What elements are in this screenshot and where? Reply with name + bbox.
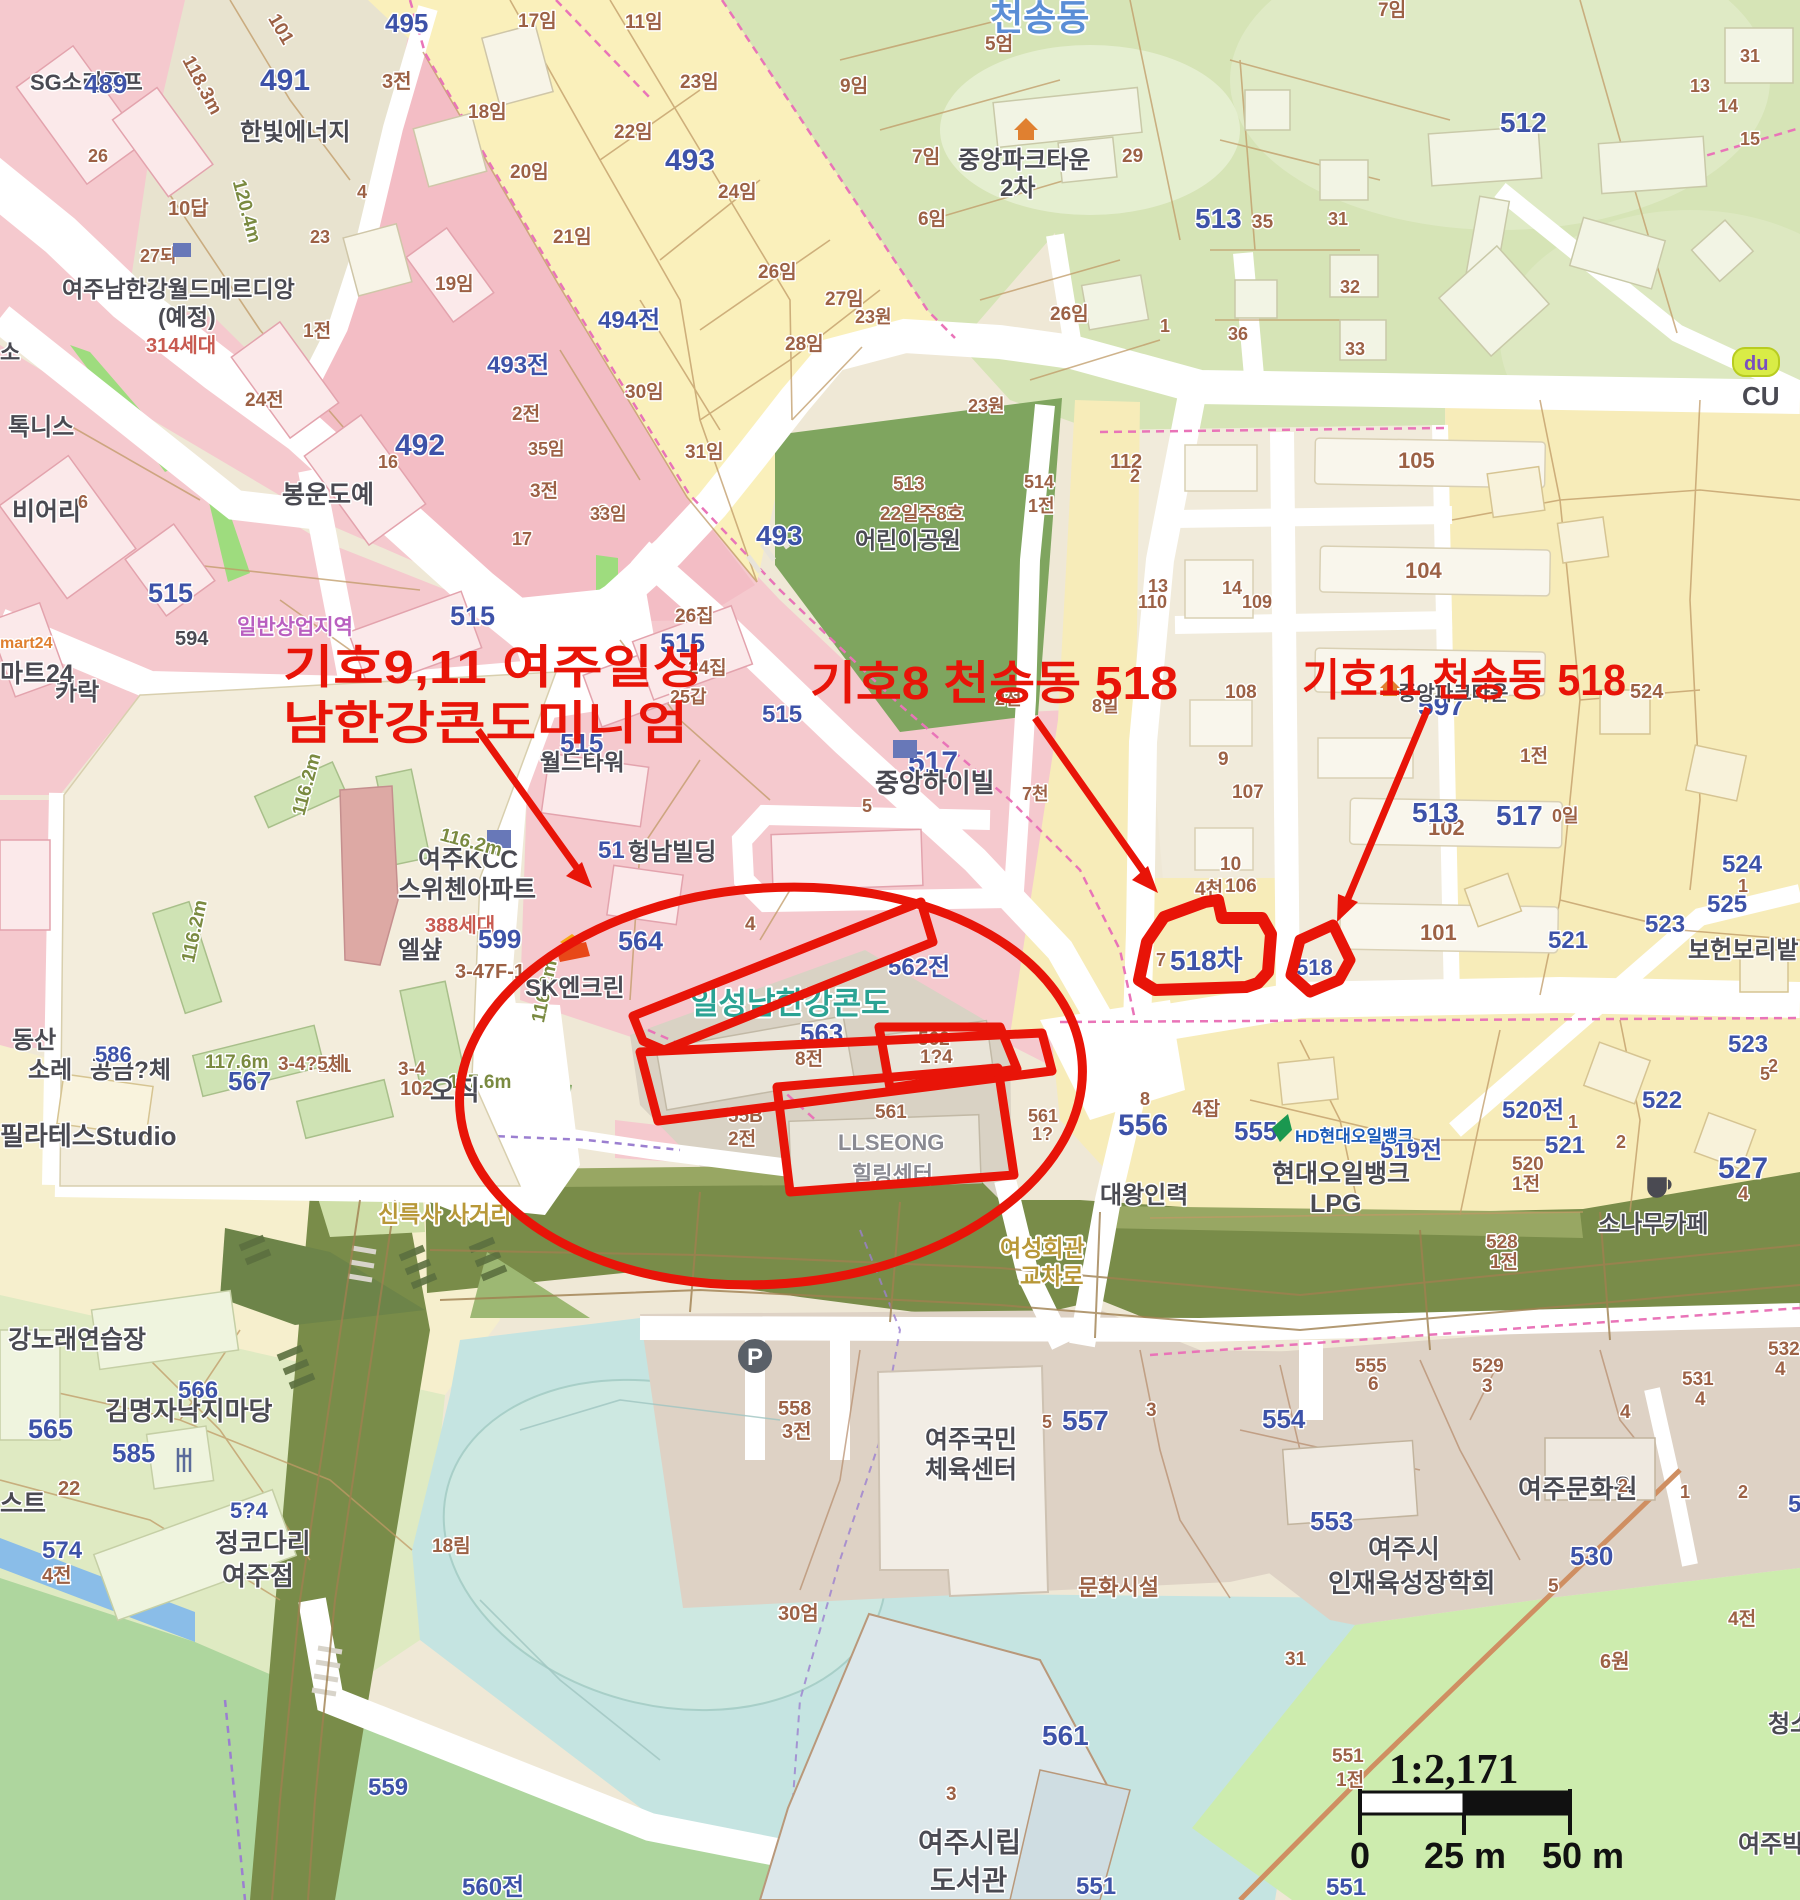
- svg-text:4: 4: [1620, 1402, 1631, 1423]
- svg-text:6: 6: [78, 492, 88, 512]
- svg-text:청소: 청소: [1768, 1711, 1800, 1738]
- svg-text:1전: 1전: [303, 320, 331, 342]
- svg-text:어린이공원: 어린이공원: [855, 527, 961, 553]
- svg-text:521: 521: [1548, 927, 1588, 954]
- svg-text:1전: 1전: [1028, 496, 1055, 516]
- svg-text:신륵사 사거리: 신륵사 사거리: [378, 1201, 511, 1227]
- svg-text:2: 2: [1738, 1482, 1748, 1502]
- svg-text:493전: 493전: [487, 352, 549, 379]
- svg-text:강노래연습장: 강노래연습장: [8, 1326, 146, 1354]
- svg-text:천송동: 천송동: [990, 0, 1089, 38]
- svg-text:557: 557: [1062, 1405, 1109, 1436]
- svg-text:5: 5: [1548, 1576, 1559, 1597]
- svg-text:여성회관: 여성회관: [1000, 1235, 1085, 1261]
- svg-text:소: 소: [0, 340, 20, 365]
- svg-text:551: 551: [1326, 1874, 1366, 1900]
- svg-text:3전: 3전: [782, 1420, 812, 1443]
- svg-text:494전: 494전: [598, 307, 660, 334]
- svg-text:31: 31: [1740, 46, 1760, 66]
- svg-text:9: 9: [1218, 749, 1229, 770]
- svg-text:26임: 26임: [1050, 303, 1089, 325]
- svg-text:마트24: 마트24: [0, 660, 74, 688]
- svg-text:4전: 4전: [1728, 1608, 1756, 1630]
- svg-text:106: 106: [1225, 876, 1257, 897]
- svg-text:11임: 11임: [625, 11, 663, 33]
- svg-text:102: 102: [400, 1078, 433, 1100]
- svg-text:10답: 10답: [168, 197, 209, 220]
- svg-text:314세대: 314세대: [146, 334, 216, 357]
- svg-text:567: 567: [228, 1066, 271, 1096]
- svg-text:31임: 31임: [685, 441, 724, 463]
- svg-text:108: 108: [1225, 682, 1257, 703]
- svg-text:560전: 560전: [462, 1874, 524, 1900]
- svg-text:109: 109: [1242, 592, 1272, 612]
- svg-text:561: 561: [1042, 1720, 1089, 1751]
- svg-text:23원: 23원: [855, 307, 892, 327]
- svg-text:515: 515: [148, 578, 193, 608]
- svg-text:9임: 9임: [840, 75, 868, 97]
- svg-text:인재육성장학회: 인재육성장학회: [1328, 1568, 1495, 1598]
- svg-text:50 m: 50 m: [1542, 1835, 1624, 1876]
- svg-text:14: 14: [1222, 578, 1242, 598]
- svg-text:493: 493: [756, 520, 803, 551]
- svg-text:기호9,11 여주일성: 기호9,11 여주일성: [283, 641, 703, 693]
- svg-text:여주점: 여주점: [222, 1561, 294, 1591]
- svg-text:30임: 30임: [625, 381, 664, 403]
- svg-text:du: du: [1744, 353, 1768, 375]
- svg-text:3-4?5체: 3-4?5체: [278, 1053, 345, 1075]
- svg-text:4: 4: [1695, 1389, 1706, 1410]
- svg-text:27되: 27되: [140, 246, 177, 266]
- svg-text:4: 4: [1738, 1184, 1749, 1205]
- svg-text:518: 518: [1296, 955, 1333, 980]
- svg-text:교차로: 교차로: [1020, 1263, 1083, 1289]
- svg-text:518차: 518차: [1170, 945, 1243, 976]
- svg-text:CU: CU: [1742, 381, 1780, 411]
- svg-text:2: 2: [1130, 466, 1140, 486]
- svg-text:105: 105: [1398, 448, 1435, 473]
- svg-text:1전: 1전: [1520, 745, 1548, 767]
- svg-text:3: 3: [946, 1784, 957, 1805]
- svg-text:532: 532: [1768, 1339, 1800, 1360]
- svg-text:7천: 7천: [1022, 784, 1049, 804]
- svg-text:561: 561: [875, 1102, 907, 1123]
- svg-text:22일주8호: 22일주8호: [880, 503, 964, 525]
- svg-text:23임: 23임: [680, 71, 719, 93]
- svg-text:32: 32: [1340, 277, 1360, 297]
- svg-text:스트: 스트: [0, 1490, 46, 1518]
- svg-text:필라테스Studio: 필라테스Studio: [0, 1121, 177, 1151]
- svg-text:일반상업지역: 일반상업지역: [237, 616, 353, 639]
- svg-text:23: 23: [310, 227, 330, 247]
- svg-text:체육센터: 체육센터: [925, 1456, 1017, 1484]
- svg-text:5: 5: [862, 796, 872, 816]
- svg-text:보헌보리밭: 보헌보리밭: [1688, 937, 1798, 964]
- svg-text:김명자낙지마당: 김명자낙지마당: [105, 1396, 273, 1426]
- svg-text:4전: 4전: [42, 1564, 72, 1587]
- svg-text:1?4: 1?4: [920, 1047, 953, 1068]
- svg-text:528: 528: [1486, 1232, 1518, 1253]
- svg-text:소레: 소레: [28, 1057, 72, 1084]
- svg-text:기호8 천송동 518: 기호8 천송동 518: [810, 657, 1178, 709]
- svg-text:495: 495: [385, 8, 428, 38]
- svg-text:4: 4: [357, 182, 367, 202]
- svg-text:555: 555: [1234, 1116, 1277, 1146]
- svg-text:봉운도예: 봉운도예: [282, 481, 374, 509]
- svg-text:5엄: 5엄: [985, 33, 1013, 55]
- svg-text:한빛에너지: 한빛에너지: [240, 119, 350, 146]
- svg-text:중앙하이빌: 중앙하이빌: [875, 768, 995, 798]
- svg-text:524: 524: [1722, 851, 1763, 878]
- svg-text:22: 22: [58, 1478, 80, 1500]
- svg-text:19임: 19임: [435, 273, 474, 295]
- svg-text:514: 514: [1024, 472, 1054, 492]
- svg-text:1:2,171: 1:2,171: [1389, 1747, 1519, 1793]
- svg-text:28임: 28임: [785, 333, 824, 355]
- svg-text:5?4: 5?4: [230, 1498, 269, 1523]
- svg-text:비어리: 비어리: [12, 498, 81, 526]
- svg-text:26집: 26집: [675, 605, 714, 627]
- svg-text:0일: 0일: [1552, 806, 1579, 826]
- svg-text:551: 551: [1076, 1873, 1116, 1900]
- svg-text:7임: 7임: [912, 146, 940, 168]
- svg-text:51: 51: [598, 837, 625, 864]
- svg-text:여주국민: 여주국민: [925, 1426, 1017, 1454]
- svg-text:554: 554: [1262, 1404, 1306, 1434]
- svg-text:P: P: [747, 1344, 763, 1371]
- svg-text:104: 104: [1405, 558, 1442, 583]
- svg-text:2전: 2전: [512, 403, 540, 425]
- svg-text:여주시: 여주시: [1368, 1534, 1440, 1564]
- svg-text:513: 513: [893, 474, 925, 495]
- svg-text:559: 559: [368, 1774, 408, 1801]
- svg-text:33임: 33임: [590, 504, 627, 524]
- svg-text:중앙파크타운: 중앙파크타운: [958, 147, 1090, 174]
- svg-text:110: 110: [1138, 592, 1167, 612]
- svg-text:29: 29: [1122, 146, 1143, 167]
- svg-text:527: 527: [1718, 1152, 1768, 1185]
- svg-text:대왕인력: 대왕인력: [1100, 1182, 1188, 1209]
- svg-text:4: 4: [1775, 1359, 1786, 1380]
- svg-text:헝남빌딩: 헝남빌딩: [628, 839, 716, 866]
- svg-text:107: 107: [1232, 782, 1264, 803]
- svg-text:101: 101: [1420, 920, 1457, 945]
- svg-text:5: 5: [1760, 1064, 1770, 1084]
- svg-text:3: 3: [1482, 1376, 1493, 1397]
- svg-text:10: 10: [1220, 854, 1241, 875]
- svg-text:여주박: 여주박: [1738, 1831, 1800, 1858]
- svg-text:HD현대오일뱅크: HD현대오일뱅크: [1295, 1127, 1414, 1146]
- svg-text:599: 599: [478, 924, 521, 954]
- svg-text:556: 556: [1118, 1109, 1168, 1142]
- svg-text:551: 551: [1332, 1746, 1364, 1767]
- svg-text:여주시립: 여주시립: [918, 1827, 1021, 1858]
- svg-text:24전: 24전: [245, 389, 284, 411]
- svg-text:20임: 20임: [510, 161, 549, 183]
- svg-text:564: 564: [618, 926, 663, 956]
- svg-text:7임: 7임: [1378, 0, 1406, 21]
- svg-text:31: 31: [1328, 209, 1348, 229]
- svg-text:530: 530: [1570, 1541, 1613, 1571]
- svg-text:22임: 22임: [614, 121, 653, 143]
- svg-text:18림: 18림: [432, 1535, 471, 1557]
- svg-text:517: 517: [1496, 800, 1543, 831]
- svg-text:35: 35: [1252, 212, 1274, 233]
- svg-text:13: 13: [1690, 76, 1710, 96]
- svg-text:18임: 18임: [468, 101, 507, 123]
- svg-text:17임: 17임: [518, 10, 557, 32]
- svg-text:1: 1: [1160, 316, 1170, 336]
- svg-text:정코다리: 정코다리: [215, 1528, 311, 1558]
- svg-text:525: 525: [1707, 891, 1747, 918]
- svg-text:3전: 3전: [382, 70, 412, 93]
- svg-text:엘샾: 엘샾: [398, 937, 442, 964]
- svg-text:30엄: 30엄: [778, 1602, 819, 1625]
- svg-text:1전: 1전: [1490, 1251, 1518, 1273]
- svg-text:mart24: mart24: [0, 635, 53, 652]
- svg-text:521: 521: [1545, 1132, 1585, 1159]
- svg-text:33: 33: [1345, 339, 1365, 359]
- svg-text:515: 515: [450, 601, 495, 631]
- svg-text:23원: 23원: [968, 396, 1005, 416]
- svg-text:558: 558: [778, 1398, 811, 1420]
- svg-text:524: 524: [1630, 681, 1664, 703]
- svg-text:4잡: 4잡: [1192, 1098, 1221, 1120]
- svg-text:오직: 오직: [430, 1076, 480, 1106]
- svg-text:586: 586: [95, 1042, 132, 1067]
- svg-text:LLSEONG: LLSEONG: [838, 1130, 944, 1155]
- svg-text:8전: 8전: [795, 1048, 823, 1070]
- svg-text:561: 561: [1028, 1106, 1058, 1126]
- svg-text:553: 553: [1310, 1506, 1353, 1536]
- svg-text:16: 16: [378, 452, 398, 472]
- svg-text:17: 17: [512, 529, 532, 549]
- svg-text:2차: 2차: [1000, 175, 1035, 202]
- svg-text:574: 574: [42, 1537, 83, 1564]
- svg-text:594: 594: [175, 628, 209, 650]
- svg-text:15: 15: [1740, 129, 1760, 149]
- svg-text:소나무카페: 소나무카페: [1598, 1211, 1708, 1238]
- svg-text:6원: 6원: [1600, 1650, 1630, 1673]
- svg-text:4: 4: [745, 914, 756, 935]
- svg-text:489: 489: [84, 69, 127, 99]
- svg-text:문화시설: 문화시설: [1078, 1575, 1159, 1600]
- svg-text:1전: 1전: [1512, 1173, 1540, 1195]
- svg-text:515: 515: [762, 701, 802, 728]
- svg-text:513: 513: [1412, 797, 1459, 828]
- svg-text:529: 529: [1472, 1356, 1504, 1377]
- svg-text:3-4: 3-4: [398, 1059, 426, 1080]
- svg-text:24임: 24임: [718, 181, 757, 203]
- svg-text:스위첸아파트: 스위첸아파트: [398, 876, 536, 904]
- svg-text:8: 8: [1140, 1089, 1150, 1109]
- svg-text:21임: 21임: [553, 226, 592, 248]
- svg-text:LPG: LPG: [1310, 1190, 1361, 1218]
- svg-text:2전: 2전: [728, 1128, 756, 1150]
- svg-text:기호11 천송동 518: 기호11 천송동 518: [1302, 656, 1626, 705]
- svg-text:SK엔크린: SK엔크린: [525, 975, 625, 1002]
- svg-text:31: 31: [1285, 1649, 1307, 1670]
- svg-text:6임: 6임: [918, 208, 946, 230]
- svg-text:26: 26: [88, 146, 108, 166]
- svg-text:25 m: 25 m: [1424, 1835, 1506, 1876]
- svg-text:492: 492: [395, 429, 445, 462]
- svg-text:3: 3: [1146, 1400, 1157, 1421]
- svg-text:14: 14: [1718, 96, 1738, 116]
- svg-text:35임: 35임: [528, 439, 565, 459]
- svg-text:1?: 1?: [1032, 1124, 1053, 1144]
- svg-text:도서관: 도서관: [930, 1865, 1008, 1896]
- svg-text:(예정): (예정): [158, 304, 216, 330]
- svg-text:1: 1: [1680, 1482, 1690, 1502]
- svg-text:585: 585: [112, 1438, 155, 1468]
- svg-text:6: 6: [1368, 1374, 1379, 1395]
- svg-text:513: 513: [1195, 203, 1242, 234]
- svg-text:톡니스: 톡니스: [8, 414, 74, 441]
- svg-text:26임: 26임: [758, 261, 797, 283]
- svg-text:0: 0: [1350, 1835, 1370, 1876]
- svg-text:520전: 520전: [1502, 1097, 1564, 1124]
- svg-text:여주남한강월드메르디앙: 여주남한강월드메르디앙: [62, 276, 295, 302]
- svg-text:512: 512: [1500, 107, 1547, 138]
- svg-text:3전: 3전: [530, 480, 558, 502]
- svg-text:523: 523: [1645, 911, 1685, 938]
- svg-text:36: 36: [1228, 324, 1248, 344]
- svg-text:7: 7: [1156, 950, 1166, 970]
- svg-text:2: 2: [1616, 1132, 1626, 1152]
- svg-text:현대오일뱅크: 현대오일뱅크: [1272, 1160, 1410, 1188]
- svg-text:520: 520: [1512, 1154, 1544, 1175]
- svg-text:5: 5: [1042, 1412, 1052, 1432]
- svg-text:491: 491: [260, 64, 310, 97]
- svg-text:1: 1: [1568, 1112, 1578, 1132]
- svg-text:동산: 동산: [12, 1027, 56, 1054]
- svg-text:1전: 1전: [1336, 1769, 1364, 1791]
- svg-text:523: 523: [1728, 1031, 1768, 1058]
- svg-text:5: 5: [1788, 1491, 1800, 1518]
- svg-text:522: 522: [1642, 1087, 1682, 1114]
- svg-text:565: 565: [28, 1414, 73, 1444]
- svg-text:2: 2: [1618, 1476, 1628, 1496]
- svg-text:531: 531: [1682, 1369, 1714, 1390]
- svg-text:493: 493: [665, 144, 715, 177]
